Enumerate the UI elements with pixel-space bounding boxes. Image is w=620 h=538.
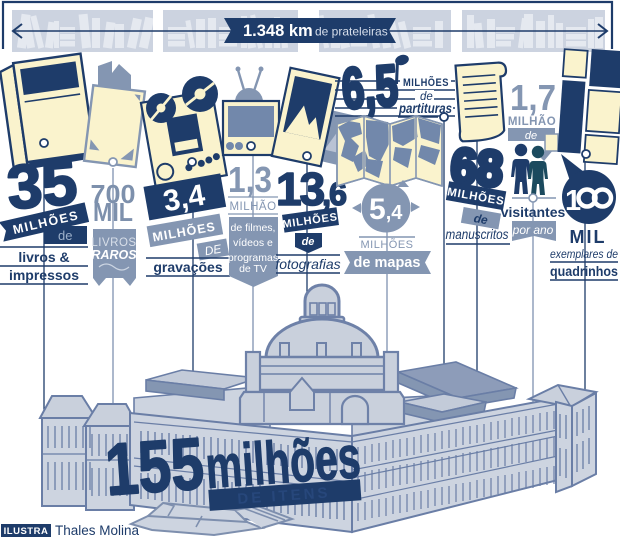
- svg-text:gravações: gravações: [153, 259, 222, 275]
- svg-text:MIL: MIL: [570, 227, 607, 247]
- svg-text:ILUSTRA: ILUSTRA: [4, 526, 49, 537]
- svg-text:de: de: [302, 236, 315, 248]
- svg-text:1,3: 1,3: [228, 159, 272, 200]
- svg-text:MIL: MIL: [93, 197, 133, 227]
- svg-text:de: de: [525, 130, 537, 142]
- svg-text:de: de: [58, 228, 72, 243]
- svg-text:quadrinhos: quadrinhos: [550, 263, 618, 279]
- svg-text:por ano: por ano: [512, 223, 554, 237]
- svg-text:MILHÕES: MILHÕES: [403, 76, 449, 89]
- svg-text:manuscritos: manuscritos: [446, 227, 509, 242]
- svg-text:MILHÃO: MILHÃO: [229, 200, 276, 213]
- svg-text:de mapas: de mapas: [354, 255, 421, 271]
- svg-text:MILHÃO: MILHÃO: [508, 115, 556, 128]
- svg-text:6,5: 6,5: [340, 53, 400, 122]
- svg-text:de TV: de TV: [239, 263, 267, 275]
- svg-text:vídeos e: vídeos e: [233, 237, 273, 249]
- svg-text:1.348 km: 1.348 km: [243, 22, 313, 40]
- svg-text:milhões: milhões: [203, 423, 362, 501]
- svg-text:Thales Molina: Thales Molina: [55, 523, 140, 538]
- svg-text:exemplares de: exemplares de: [550, 249, 618, 261]
- svg-text:livros &: livros &: [18, 249, 69, 265]
- svg-text:visitantes: visitantes: [501, 204, 566, 220]
- svg-text:impressos: impressos: [9, 267, 79, 283]
- svg-text:RAROS: RAROS: [91, 248, 137, 262]
- svg-text:155: 155: [103, 423, 206, 511]
- svg-text:MILHÕES: MILHÕES: [360, 238, 413, 251]
- svg-text:de filmes,: de filmes,: [231, 222, 276, 234]
- svg-text:fotografias: fotografias: [275, 256, 340, 272]
- svg-text:de prateleiras: de prateleiras: [315, 25, 388, 39]
- svg-text:de: de: [473, 211, 490, 227]
- svg-text:1,7: 1,7: [510, 77, 556, 118]
